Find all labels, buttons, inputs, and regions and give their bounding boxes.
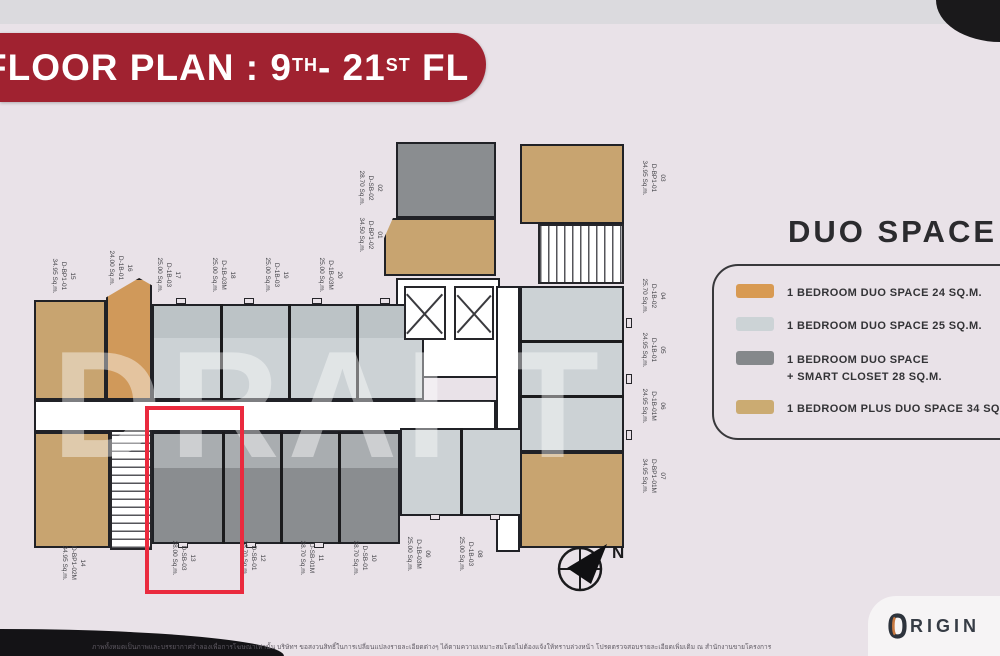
balcony-tick [430,514,440,520]
legend-title: DUO SPACE [788,214,997,250]
legend-item: 1 BEDROOM PLUS DUO SPACE 34 SQ.M. [736,401,1000,418]
unit-16 [106,278,152,400]
origin-logo-text: RIGIN [910,616,980,637]
unit-label-20: 20D-1B-03M25.00 Sq.m. [317,257,343,292]
units-04-05-06 [520,286,624,452]
top-strip [0,0,1000,24]
balcony-tick [626,430,632,440]
legend-swatch-lightgray [736,317,774,331]
origin-o-icon [888,613,907,639]
unit-label-07: 07D-BP1-01M34.95 Sq.m. [640,458,666,493]
stairwell-upper [538,224,624,284]
unit-01 [384,218,496,276]
page-title: FLOOR PLAN : 9TH- 21ST FL [0,47,469,89]
wall [220,304,223,400]
wall [288,304,291,400]
legend-swatch-darkgray [736,351,774,365]
unit-label-01: 01D-BP1-0234.50 Sq.m. [357,217,383,252]
legend-item: 1 BEDROOM DUO SPACE+ SMART CLOSET 28 SQ.… [736,352,942,386]
balcony-tick [490,514,500,520]
unit-label-17: 17D-1B-0325.00 Sq.m. [155,257,181,292]
north-arrow-icon: N [552,536,630,600]
unit-label-04: 04D-1B-0225.70 Sq.m. [640,278,666,313]
wall [460,428,463,516]
wall [520,340,624,343]
unit-label-05: 05D-1B-0124.95 Sq.m. [640,332,666,367]
legend-swatch-orange [736,284,774,298]
floor-plan-page: FLOOR PLAN : 9TH- 21ST FL DUO SPACE 1 BE… [0,0,1000,656]
unit-label-18: 18D-1B-03M25.00 Sq.m. [210,257,236,292]
wall [280,432,283,544]
balcony-tick [380,298,390,304]
unit-15 [34,300,106,400]
highlight-unit-13-outline [145,406,244,594]
disclaimer-text: ภาพทั้งหมดเป็นภาพและบรรยากาศจำลองเพื่อกา… [92,642,970,652]
floor-plan: 02D-SB-0228.70 Sq.m. 01D-BP1-0234.50 Sq.… [28,128,693,603]
unit-label-16: 16D-1B-0124.00 Sq.m. [107,250,133,285]
unit-14 [34,432,110,548]
balcony-tick [176,298,186,304]
unit-label-03: 03D-BP1-0134.95 Sq.m. [640,160,666,195]
balcony-tick [626,374,632,384]
svg-text:N: N [612,543,624,562]
unit-label-11: 11D-SB-01M28.70 Sq.m. [298,540,324,575]
unit-label-09: 09D-1B-03M25.00 Sq.m. [405,536,431,571]
legend-item: 1 BEDROOM DUO SPACE 24 SQ.M. [736,285,982,302]
wall [356,304,359,400]
unit-label-14: 14D-BP1-02M34.95 Sq.m. [60,545,86,580]
unit-label-06: 06D-1B-01M24.95 Sq.m. [640,388,666,423]
wall [338,432,341,544]
unit-label-19: 19D-1B-0325.00 Sq.m. [263,257,289,292]
unit-label-15: 15D-BP1-0134.95 Sq.m. [50,258,76,293]
elevator-shaft [404,286,446,340]
legend-swatch-tan [736,400,774,414]
unit-02 [396,142,496,218]
wall [520,395,624,398]
north-compass: N [552,536,630,605]
balcony-tick [244,298,254,304]
unit-label-08: 08D-1B-0325.00 Sq.m. [457,536,483,571]
balcony-tick [312,298,322,304]
title-banner: FLOOR PLAN : 9TH- 21ST FL [0,33,486,102]
legend-box: 1 BEDROOM DUO SPACE 24 SQ.M. 1 BEDROOM D… [712,264,1000,440]
unit-03 [520,144,624,224]
unit-07 [520,452,624,548]
origin-logo: RIGIN [868,596,1000,656]
corner-decoration-top-right [936,0,1000,42]
elevator-shaft [454,286,494,340]
unit-label-02: 02D-SB-0228.70 Sq.m. [357,170,383,205]
unit-label-10: 10D-SB-0128.70 Sq.m. [351,540,377,575]
balcony-tick [626,318,632,328]
legend-item: 1 BEDROOM DUO SPACE 25 SQ.M. [736,318,982,335]
